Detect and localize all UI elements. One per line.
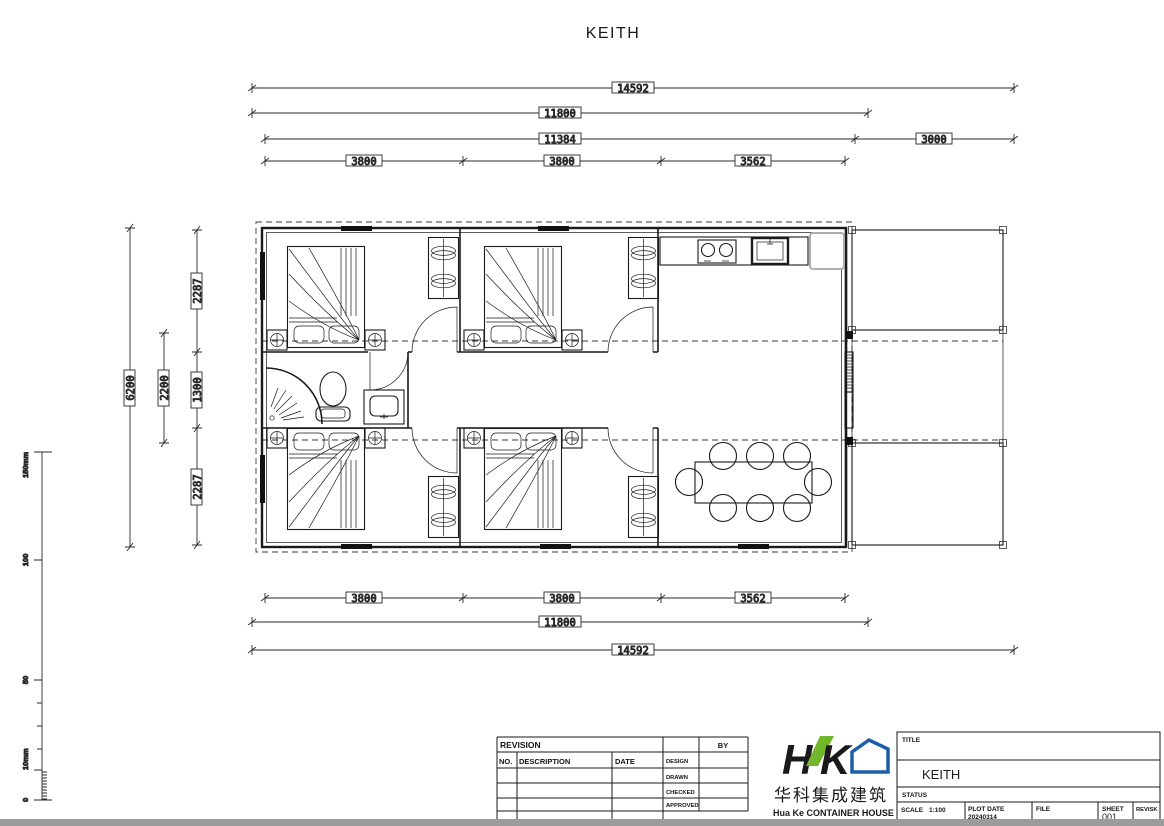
ruler-label-50: 50 (21, 676, 30, 684)
cooktop-icon (698, 240, 736, 263)
sink-icon (752, 238, 788, 264)
wardrobe-1 (429, 238, 459, 299)
dim-top-body: 11384 (544, 134, 576, 146)
ruler-label-100: 100 (21, 554, 30, 567)
logo-house-icon (852, 740, 888, 772)
fridge-icon (810, 233, 844, 269)
dim-top-extension: 3000 (921, 134, 946, 146)
dim-bottom-bay1: 3800 (351, 593, 376, 605)
window-strips (260, 226, 769, 549)
dim-left-room-top: 2287 (192, 278, 204, 303)
dim-left-bath: 2200 (159, 375, 171, 400)
bathroom (266, 368, 404, 424)
design-label: DESIGN (666, 759, 688, 765)
dim-left-room-bottom: 2287 (192, 474, 204, 499)
title-label: TITLE (902, 737, 921, 744)
page-title: KEITH (586, 25, 641, 42)
partition-walls (408, 228, 658, 547)
ruler-label-150: 150mm (21, 452, 30, 478)
dim-top-main: 11800 (544, 108, 576, 120)
basin-icon (364, 390, 404, 424)
bed-1 (288, 247, 365, 348)
scale-ruler: 150mm 100 50 10mm 0 (21, 452, 52, 802)
dim-bottom-bay3: 3562 (740, 593, 765, 605)
extension-modules (845, 227, 1007, 549)
dimensions-bottom: 3800 3800 3562 11800 14592 (248, 592, 1018, 657)
floor-plan (256, 222, 1007, 552)
wardrobe-2 (629, 238, 659, 299)
logo-chinese-text: 华科集成建筑 (774, 786, 888, 805)
bottom-gray-bar (0, 819, 1164, 826)
by-header: BY (718, 741, 728, 750)
revision-table: REVISION BY NO. DESCRIPTION DATE DESIGN … (497, 737, 748, 825)
dim-left-corridor: 1300 (192, 377, 204, 402)
dim-top-overall: 14592 (617, 83, 649, 95)
file-label: FILE (1036, 806, 1051, 813)
drawing-sheet: KEITH 150mm 100 50 10mm 0 14592 11800 11… (0, 0, 1164, 826)
description-header: DESCRIPTION (519, 757, 570, 766)
title-block: TITLE KEITH STATUS SCALE 1:100 PLOT DATE… (897, 732, 1160, 823)
revision-header: REVISION (500, 740, 541, 750)
bed-3 (288, 429, 365, 530)
drawn-label: DRAWN (666, 775, 688, 781)
shower-icon (266, 368, 322, 424)
shower-spray (270, 388, 304, 420)
dim-bottom-overall: 14592 (617, 645, 649, 657)
logo-letter-k: K (820, 736, 853, 783)
scale-value: 1:100 (929, 807, 946, 814)
approved-label: APPROVED (666, 803, 699, 809)
ruler-label-0: 0 (21, 798, 30, 802)
dim-bottom-bay2: 3800 (549, 593, 574, 605)
bed-4 (485, 429, 562, 530)
door-arcs (370, 307, 653, 473)
dining-set (676, 443, 832, 522)
status-label: STATUS (902, 792, 928, 799)
dim-top-bay3: 3562 (740, 156, 765, 168)
bed-2 (485, 247, 562, 348)
dim-top-bay2: 3800 (549, 156, 574, 168)
dimensions-top: 14592 11800 11384 3000 3800 3800 3562 (248, 82, 1018, 168)
toilet-icon (320, 372, 346, 406)
dimensions-left: 6200 2200 2287 1300 2287 (124, 224, 204, 551)
revisk-label: REVISK (1136, 807, 1158, 813)
ruler-label-10: 10mm (21, 748, 30, 770)
logo-english-text: Hua Ke CONTAINER HOUSE (773, 808, 894, 818)
date-header: DATE (615, 757, 635, 766)
plot-date-label: PLOT DATE (968, 806, 1005, 813)
title-value: KEITH (922, 767, 960, 782)
company-logo: H K 华科集成建筑 Hua Ke CONTAINER HOUSE (773, 736, 894, 818)
wardrobe-4 (629, 477, 659, 538)
no-header: NO. (499, 757, 512, 766)
exterior-wall (262, 228, 846, 547)
scale-label: SCALE (901, 807, 924, 814)
dim-bottom-main: 11800 (544, 617, 576, 629)
wardrobe-3 (429, 477, 459, 538)
floor-plan-drawing: KEITH 150mm 100 50 10mm 0 14592 11800 11… (0, 0, 1164, 826)
checked-label: CHECKED (666, 790, 695, 796)
dim-top-bay1: 3800 (351, 156, 376, 168)
kitchen (660, 233, 844, 269)
dim-left-overall: 6200 (125, 375, 137, 400)
